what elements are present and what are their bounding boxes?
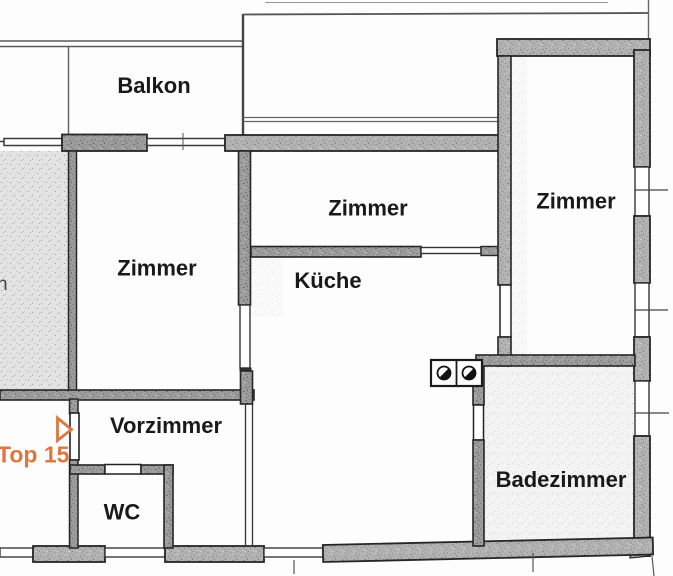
svg-text:Top 15: Top 15 <box>0 442 70 468</box>
svg-text:Vorzimmer: Vorzimmer <box>110 413 223 438</box>
svg-text:Balkon: Balkon <box>117 73 190 98</box>
svg-text:Zimmer: Zimmer <box>117 256 197 281</box>
svg-text:Zimmer: Zimmer <box>536 189 616 214</box>
svg-text:Zimmer: Zimmer <box>328 196 408 221</box>
svg-text:Badezimmer: Badezimmer <box>496 467 627 492</box>
svg-text:WC: WC <box>104 500 141 525</box>
svg-text:Küche: Küche <box>294 268 361 293</box>
svg-text:h: h <box>0 274 8 295</box>
